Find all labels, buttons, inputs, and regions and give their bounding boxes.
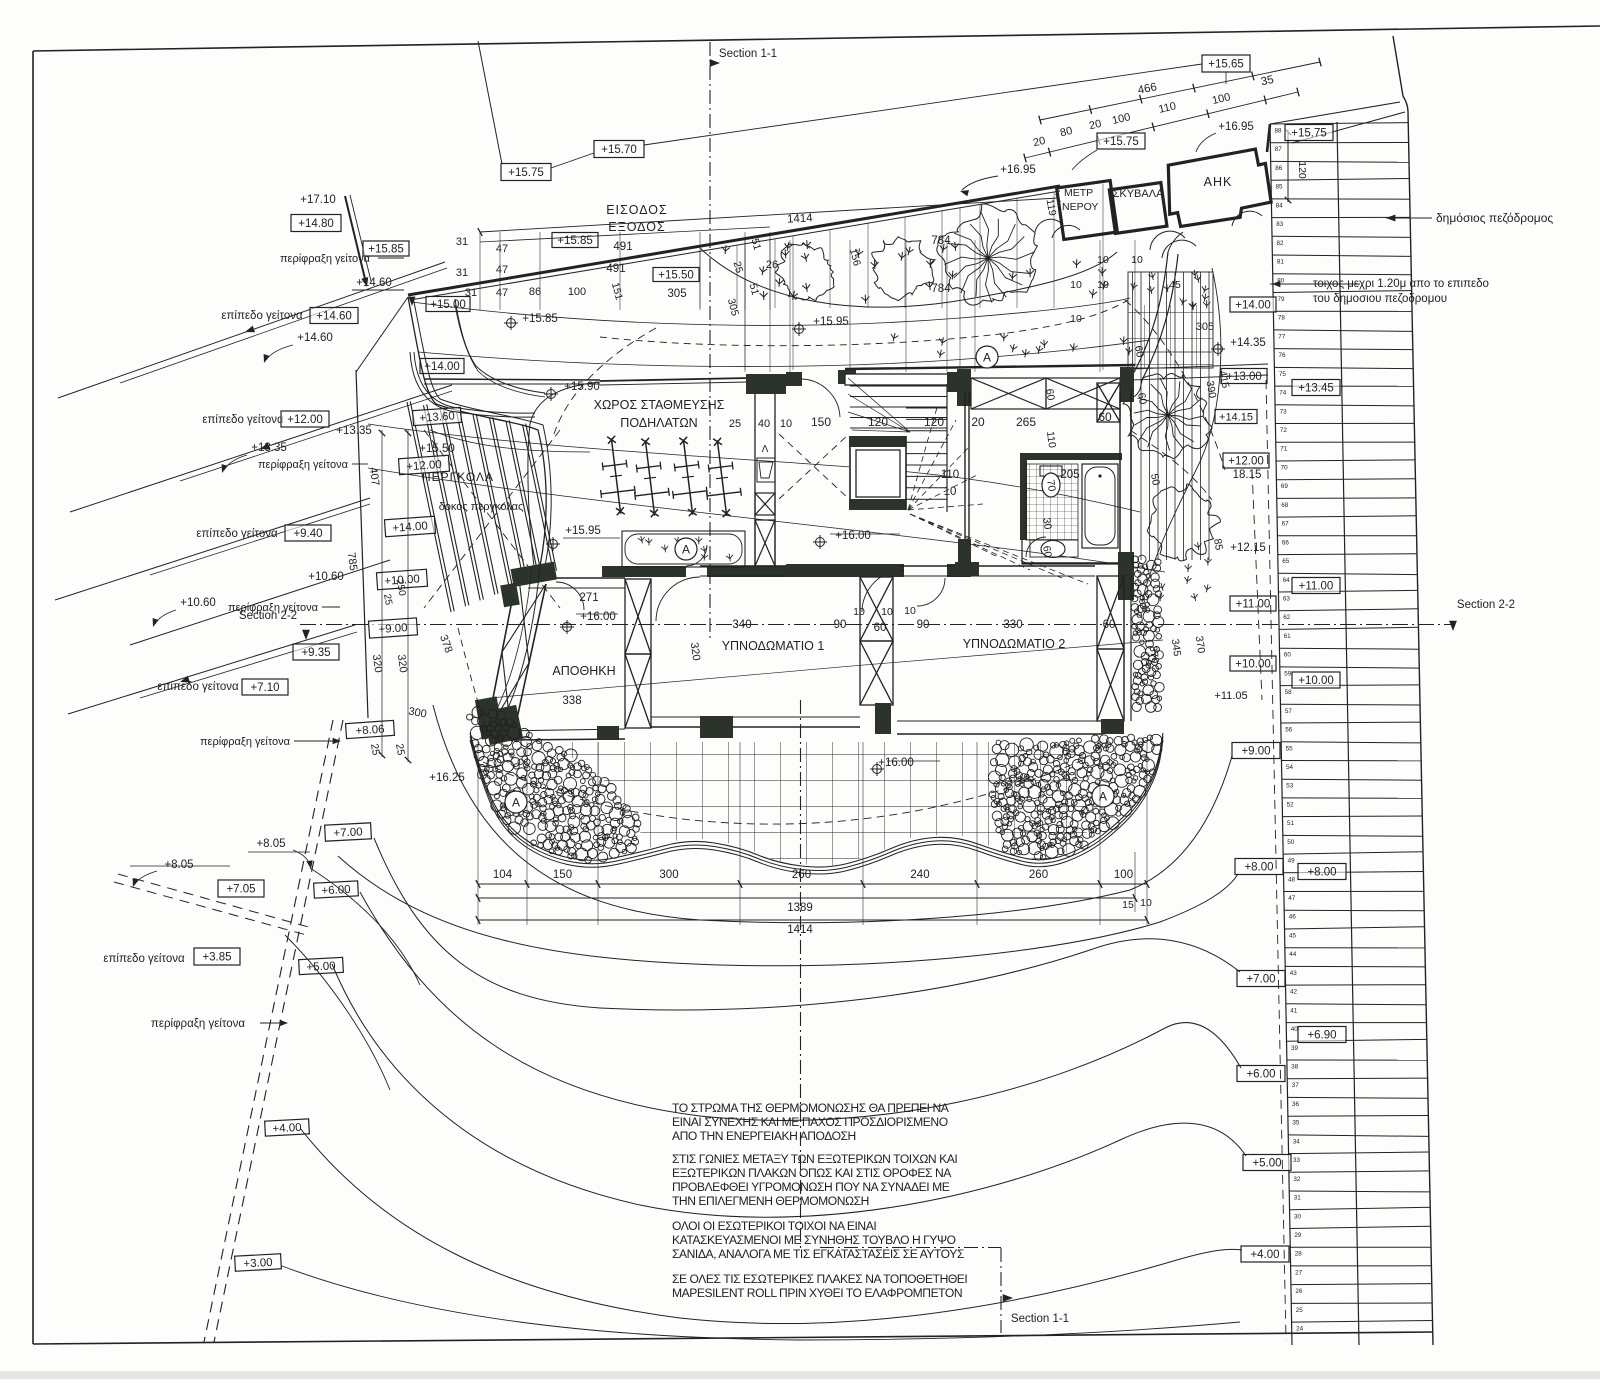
svg-text:39: 39 [1291, 1045, 1299, 1052]
svg-text:260: 260 [1029, 869, 1048, 881]
svg-text:330: 330 [1003, 619, 1022, 631]
svg-text:ΤΗΝ ΕΠΙΛΕΓΜΕΝΗ ΘΕΡΜΟΜΟΝΩΣΗ: ΤΗΝ ΕΠΙΛΕΓΜΕΝΗ ΘΕΡΜΟΜΟΝΩΣΗ [672, 1194, 869, 1208]
svg-text:ΥΠΝΟΔΩΜΑΤΙΟ 1: ΥΠΝΟΔΩΜΑΤΙΟ 1 [722, 639, 825, 653]
svg-text:60: 60 [1098, 410, 1112, 424]
svg-text:345: 345 [1169, 638, 1183, 657]
svg-text:60: 60 [1284, 652, 1292, 659]
svg-text:+11.05: +11.05 [1214, 690, 1247, 702]
svg-text:60: 60 [874, 622, 887, 634]
svg-text:70: 70 [1281, 465, 1289, 472]
svg-text:ΟΛΟΙ ΟΙ ΕΣΩΤΕΡΙΚΟΙ ΤΟΙΧΟΙ ΝΑ Ε: ΟΛΟΙ ΟΙ ΕΣΩΤΕΡΙΚΟΙ ΤΟΙΧΟΙ ΝΑ ΕΙΝΑΙ [672, 1219, 876, 1233]
svg-text:ΣΤΙΣ ΓΩΝΙΕΣ ΜΕΤΑΞΥ ΤΩΝ ΕΞΩΤΕΡΙ: ΣΤΙΣ ΓΩΝΙΕΣ ΜΕΤΑΞΥ ΤΩΝ ΕΞΩΤΕΡΙΚΩΝ ΤΟΙΧΩΝ… [672, 1152, 957, 1166]
svg-text:30: 30 [1294, 1213, 1302, 1220]
svg-text:74: 74 [1279, 390, 1287, 397]
svg-text:86: 86 [529, 286, 541, 298]
svg-text:+10.60: +10.60 [180, 597, 216, 609]
svg-text:90: 90 [917, 619, 930, 631]
svg-text:ΑΗΚ: ΑΗΚ [1204, 175, 1233, 189]
svg-text:70: 70 [1044, 479, 1058, 492]
svg-text:περίφραξη γείτονα: περίφραξη γείτονα [228, 602, 319, 614]
svg-text:10: 10 [1131, 254, 1143, 266]
svg-text:300: 300 [659, 869, 678, 881]
svg-text:120: 120 [1296, 161, 1308, 179]
svg-text:784: 784 [931, 235, 951, 247]
svg-text:+13.60: +13.60 [419, 410, 455, 424]
svg-text:ΚΑΤΑΣΚΕΥΑΣΜΕΝΟΙ ΜΕ ΣΥΝΗΘΗΣ ΤΟΥ: ΚΑΤΑΣΚΕΥΑΣΜΕΝΟΙ ΜΕ ΣΥΝΗΘΗΣ ΤΟΥΒΛΟ Η ΓΥΨΟ [672, 1233, 956, 1247]
svg-text:Section 1-1: Section 1-1 [719, 48, 777, 60]
svg-text:61: 61 [1284, 633, 1292, 640]
svg-text:επίπεδο γείτονα: επίπεδο γείτονα [221, 310, 303, 322]
svg-text:A: A [682, 543, 690, 557]
svg-text:72: 72 [1280, 427, 1288, 434]
svg-text:περίφραξη γείτονα: περίφραξη γείτονα [200, 736, 291, 748]
svg-text:77: 77 [1278, 333, 1286, 340]
svg-text:340: 340 [732, 619, 751, 631]
svg-text:65: 65 [1282, 558, 1290, 565]
svg-text:+10.00: +10.00 [1298, 675, 1334, 687]
svg-text:43: 43 [1290, 970, 1298, 977]
svg-text:ΕΞΟΔΟΣ: ΕΞΟΔΟΣ [608, 220, 665, 234]
svg-text:+11.00: +11.00 [1236, 599, 1271, 611]
svg-text:+7.00: +7.00 [1246, 974, 1275, 986]
svg-text:επίπεδο γείτονα: επίπεδο γείτονα [196, 528, 278, 540]
svg-text:150: 150 [553, 869, 572, 881]
svg-text:31: 31 [456, 267, 468, 279]
svg-text:55: 55 [1286, 745, 1294, 752]
svg-text:ΣΑΝΙΔΑ, ΑΝΑΛΟΓΑ ΜΕ ΤΙΣ ΕΓΚΑΤΑΣ: ΣΑΝΙΔΑ, ΑΝΑΛΟΓΑ ΜΕ ΤΙΣ ΕΓΚΑΤΑΣΤΑΣΕΙΣ ΣΕ … [672, 1247, 964, 1261]
svg-text:44: 44 [1289, 951, 1297, 958]
svg-text:+10.00: +10.00 [1235, 659, 1271, 671]
svg-text:60: 60 [1103, 619, 1116, 631]
svg-text:+6.00: +6.00 [1246, 1069, 1275, 1081]
svg-text:110: 110 [941, 469, 959, 481]
svg-text:25: 25 [393, 743, 407, 757]
svg-text:60: 60 [1132, 345, 1146, 359]
svg-text:82: 82 [1276, 240, 1284, 247]
svg-text:περίφραξη γείτονα: περίφραξη γείτονα [258, 459, 349, 471]
svg-text:+8.06: +8.06 [355, 724, 385, 738]
svg-text:68: 68 [1281, 502, 1289, 509]
svg-text:104: 104 [493, 869, 513, 881]
svg-text:47: 47 [496, 287, 508, 299]
svg-text:491: 491 [606, 263, 625, 275]
svg-text:+14.35: +14.35 [1230, 337, 1266, 349]
svg-text:79: 79 [1277, 296, 1285, 303]
svg-text:Section 1-1: Section 1-1 [1011, 1313, 1069, 1325]
svg-text:1389: 1389 [787, 902, 813, 914]
svg-text:+13.35: +13.35 [251, 442, 287, 454]
svg-text:85: 85 [1211, 538, 1225, 552]
svg-text:+15.75: +15.75 [1103, 136, 1139, 148]
svg-text:50: 50 [1148, 473, 1162, 487]
svg-text:10: 10 [853, 606, 865, 618]
svg-text:+15.65: +15.65 [1208, 59, 1244, 71]
svg-text:31: 31 [1294, 1195, 1302, 1202]
svg-text:ΠΟΔΗΛΑΤΩΝ: ΠΟΔΗΛΑΤΩΝ [620, 416, 697, 430]
svg-text:47: 47 [496, 243, 508, 255]
svg-text:10: 10 [944, 486, 957, 498]
svg-text:320: 320 [395, 654, 409, 674]
svg-text:26: 26 [766, 259, 778, 271]
svg-text:83: 83 [1276, 221, 1284, 228]
svg-text:100: 100 [568, 286, 586, 298]
svg-text:100: 100 [1114, 869, 1133, 881]
svg-text:+16.95: +16.95 [1218, 121, 1254, 133]
svg-text:+15.85: +15.85 [368, 244, 404, 256]
svg-text:+4.00: +4.00 [1250, 1249, 1279, 1261]
svg-text:+16.00: +16.00 [878, 757, 914, 769]
svg-text:25: 25 [729, 418, 741, 430]
svg-text:+8.00: +8.00 [1244, 862, 1273, 874]
svg-text:ΧΩΡΟΣ ΣΤΑΘΜΕΥΣΗΣ: ΧΩΡΟΣ ΣΤΑΘΜΕΥΣΗΣ [594, 398, 725, 412]
svg-text:1414: 1414 [787, 924, 813, 936]
svg-text:24: 24 [1296, 1326, 1304, 1333]
svg-text:+7.05: +7.05 [226, 884, 255, 896]
svg-text:20: 20 [971, 415, 985, 429]
svg-text:271: 271 [579, 592, 598, 604]
svg-text:δοκός περγκολας: δοκός περγκολας [439, 501, 524, 513]
svg-text:+13.45: +13.45 [1298, 383, 1334, 395]
svg-text:120: 120 [868, 415, 888, 429]
svg-text:60: 60 [1040, 545, 1054, 558]
svg-text:+7.10: +7.10 [250, 682, 279, 694]
svg-text:επίπεδο γείτονα: επίπεδο γείτονα [202, 414, 284, 426]
svg-text:31: 31 [456, 236, 468, 248]
svg-text:περίφραξη γείτονα: περίφραξη γείτονα [280, 253, 371, 265]
svg-text:+13.35: +13.35 [336, 425, 372, 437]
svg-text:+14.80: +14.80 [298, 218, 334, 230]
svg-text:+7.00: +7.00 [333, 826, 363, 840]
svg-text:ΕΙΣΟΔΟΣ: ΕΙΣΟΔΟΣ [606, 203, 668, 217]
svg-text:120: 120 [924, 415, 944, 429]
svg-text:+9.35: +9.35 [301, 647, 330, 659]
svg-text:305: 305 [1196, 321, 1214, 333]
svg-text:88: 88 [1274, 128, 1282, 135]
svg-text:+12.00: +12.00 [406, 459, 442, 473]
svg-text:28: 28 [1295, 1251, 1303, 1258]
svg-text:+14.00: +14.00 [392, 520, 428, 534]
svg-text:58: 58 [1285, 689, 1293, 696]
svg-text:49: 49 [1288, 858, 1296, 865]
svg-text:60: 60 [1135, 392, 1149, 405]
svg-text:87: 87 [1275, 146, 1283, 153]
svg-text:+9.00: +9.00 [378, 622, 408, 636]
svg-text:+3.00: +3.00 [243, 1257, 273, 1271]
svg-text:320: 320 [688, 642, 702, 662]
svg-text:ΕΞΩΤΕΡΙΚΩΝ ΠΛΑΚΩΝ ΟΠΩΣ ΚΑΙ ΣΤΙ: ΕΞΩΤΕΡΙΚΩΝ ΠΛΑΚΩΝ ΟΠΩΣ ΚΑΙ ΣΤΙΣ ΟΡΟΦΕΣ Ν… [672, 1166, 952, 1180]
svg-text:370: 370 [1193, 635, 1207, 654]
svg-text:25: 25 [1296, 1307, 1304, 1314]
svg-text:81: 81 [1277, 259, 1285, 266]
svg-text:45: 45 [1289, 933, 1297, 940]
svg-text:10: 10 [1140, 897, 1152, 909]
svg-text:10: 10 [881, 606, 893, 618]
svg-text:110: 110 [1044, 430, 1058, 448]
svg-text:85: 85 [1275, 184, 1283, 191]
svg-text:63: 63 [1283, 596, 1291, 603]
svg-text:18.15: 18.15 [1233, 469, 1262, 481]
svg-text:+11.00: +11.00 [1299, 581, 1334, 593]
svg-text:76: 76 [1278, 352, 1286, 359]
svg-text:+15.95: +15.95 [813, 316, 849, 328]
svg-text:71: 71 [1280, 446, 1288, 453]
svg-text:ΣΕ ΟΛΕΣ ΤΙΣ ΕΣΩΤΕΡΙΚΕΣ ΠΛΑΚΕΣ: ΣΕ ΟΛΕΣ ΤΙΣ ΕΣΩΤΕΡΙΚΕΣ ΠΛΑΚΕΣ ΝΑ ΤΟΠΟΘΕΤ… [672, 1272, 967, 1286]
svg-text:+15.70: +15.70 [601, 144, 637, 156]
svg-text:+14.60: +14.60 [297, 332, 333, 344]
svg-text:+16.00: +16.00 [580, 611, 616, 623]
svg-text:ΕΙΝΑΙ ΣΥΝΕΧΗΣ ΚΑΙ ΜΕ ΠΑΧΟΣ ΠΡΟ: ΕΙΝΑΙ ΣΥΝΕΧΗΣ ΚΑΙ ΜΕ ΠΑΧΟΣ ΠΡΟΣΔΙΟΡΙΣΜΕΝ… [672, 1115, 948, 1129]
svg-text:784: 784 [931, 283, 951, 295]
svg-text:785: 785 [345, 552, 359, 572]
svg-text:+15.95: +15.95 [565, 525, 601, 537]
svg-text:25: 25 [368, 743, 382, 757]
svg-text:A: A [512, 796, 520, 810]
svg-text:10: 10 [904, 605, 916, 617]
svg-text:+14.60: +14.60 [316, 311, 352, 323]
svg-text:+12.00: +12.00 [1228, 456, 1264, 468]
svg-text:του δημοσιου πεζοδρομου: του δημοσιου πεζοδρομου [1313, 293, 1447, 305]
svg-text:338: 338 [562, 695, 581, 707]
svg-text:31: 31 [465, 287, 477, 299]
svg-text:62: 62 [1283, 614, 1291, 621]
svg-text:+9.00: +9.00 [1241, 746, 1270, 758]
svg-text:περίφραξη γείτονα: περίφραξη γείτονα [151, 1018, 246, 1030]
svg-text:491: 491 [613, 241, 632, 253]
svg-text:ΑΠΟΘΗΚΗ: ΑΠΟΘΗΚΗ [552, 664, 615, 678]
svg-text:84: 84 [1276, 202, 1284, 209]
svg-text:+12.00: +12.00 [287, 414, 323, 426]
svg-text:+9.40: +9.40 [293, 528, 322, 540]
svg-text:+5.00: +5.00 [1252, 1158, 1281, 1170]
svg-text:47: 47 [496, 264, 508, 276]
svg-text:35: 35 [1292, 1120, 1300, 1127]
svg-text:15: 15 [1122, 899, 1134, 911]
svg-text:1414: 1414 [787, 212, 814, 225]
svg-text:40: 40 [758, 418, 770, 430]
svg-text:+15.50: +15.50 [419, 443, 455, 455]
svg-text:A: A [983, 351, 991, 365]
svg-text:52: 52 [1287, 801, 1295, 808]
svg-text:37: 37 [1292, 1082, 1300, 1089]
svg-text:+15.75: +15.75 [1291, 128, 1327, 140]
svg-text:205: 205 [1060, 469, 1079, 481]
svg-text:+16.00: +16.00 [835, 530, 871, 542]
svg-text:ΥΠΝΟΔΩΜΑΤΙΟ 2: ΥΠΝΟΔΩΜΑΤΙΟ 2 [963, 637, 1066, 651]
svg-text:48: 48 [1288, 876, 1296, 883]
svg-text:86: 86 [1275, 165, 1283, 172]
svg-text:57: 57 [1285, 708, 1293, 715]
svg-text:32: 32 [1293, 1176, 1301, 1183]
svg-text:30: 30 [1040, 517, 1054, 530]
svg-text:150: 150 [811, 415, 831, 429]
svg-text:10: 10 [1070, 279, 1082, 291]
svg-text:265: 265 [1016, 415, 1036, 429]
svg-text:+15.50: +15.50 [658, 270, 694, 282]
svg-text:59: 59 [1284, 670, 1292, 677]
svg-text:10: 10 [780, 418, 792, 430]
svg-text:+17.10: +17.10 [300, 194, 336, 206]
svg-text:26: 26 [1295, 1288, 1303, 1295]
svg-text:47: 47 [1288, 895, 1296, 902]
svg-text:Section 2-2: Section 2-2 [1457, 599, 1515, 611]
svg-text:επίπεδο γείτονα: επίπεδο γείτονα [103, 953, 185, 965]
svg-text:260: 260 [792, 869, 811, 881]
svg-text:MAPESILENT ROLL ΠΡΙΝ ΧΥΘΕΙ ΤΟ: MAPESILENT ROLL ΠΡΙΝ ΧΥΘΕΙ ΤΟ ΕΛΑΦΡΟΜΠΕΤ… [672, 1286, 962, 1300]
svg-text:90: 90 [834, 619, 847, 631]
svg-text:+16.95: +16.95 [1000, 164, 1036, 176]
svg-text:ΤΟ ΣΤΡΩΜΑ ΤΗΣ ΘΕΡΜΟΜΟΝΩΣΗΣ ΘΑ: ΤΟ ΣΤΡΩΜΑ ΤΗΣ ΘΕΡΜΟΜΟΝΩΣΗΣ ΘΑ ΠΡΕΠΕΙ ΝΑ [672, 1101, 950, 1115]
svg-text:66: 66 [1282, 539, 1290, 546]
svg-text:ΑΠΟ ΤΗΝ ΕΝΕΡΓΕΙΑΚΗ ΑΠΟΔΟΣΗ: ΑΠΟ ΤΗΝ ΕΝΕΡΓΕΙΑΚΗ ΑΠΟΔΟΣΗ [672, 1129, 856, 1143]
svg-text:73: 73 [1280, 408, 1288, 415]
svg-text:75: 75 [1279, 371, 1287, 378]
svg-text:+14.15: +14.15 [1219, 412, 1253, 424]
svg-text:επίπεδο γείτονα: επίπεδο γείτονα [157, 681, 239, 693]
svg-text:56: 56 [1285, 727, 1293, 734]
svg-text:240: 240 [910, 869, 929, 881]
svg-text:69: 69 [1281, 483, 1289, 490]
svg-text:+12.15: +12.15 [1230, 542, 1266, 554]
svg-text:+4.00: +4.00 [272, 1122, 302, 1136]
svg-text:305: 305 [667, 288, 686, 300]
svg-text:27: 27 [1295, 1269, 1303, 1276]
svg-text:+8.00: +8.00 [1307, 867, 1336, 879]
svg-text:+6.90: +6.90 [1307, 1030, 1336, 1042]
svg-text:δημόσιος πεζόδρομος: δημόσιος πεζόδρομος [1436, 211, 1553, 225]
svg-text:ΜΕΤΡ: ΜΕΤΡ [1064, 187, 1093, 199]
svg-text:60: 60 [1043, 388, 1057, 401]
svg-text:34: 34 [1293, 1138, 1301, 1145]
svg-text:33: 33 [1293, 1157, 1301, 1164]
svg-text:ΠΡΟΒΛΕΦΘΕΙ ΥΓΡΟΜΟΝΩΣΗ ΠΟΥ ΝΑ Σ: ΠΡΟΒΛΕΦΘΕΙ ΥΓΡΟΜΟΝΩΣΗ ΠΟΥ ΝΑ ΣΥΝΑΔΕΙ ΜΕ [672, 1180, 950, 1194]
svg-text:ΝΕΡΟΥ: ΝΕΡΟΥ [1062, 201, 1098, 213]
svg-text:46: 46 [1289, 914, 1297, 921]
svg-text:42: 42 [1290, 989, 1298, 996]
svg-text:29: 29 [1294, 1232, 1302, 1239]
svg-text:40: 40 [1291, 1026, 1299, 1033]
svg-text:51: 51 [1287, 820, 1295, 827]
svg-text:38: 38 [1291, 1064, 1299, 1071]
svg-text:41: 41 [1290, 1007, 1298, 1014]
svg-text:78: 78 [1278, 315, 1286, 322]
svg-text:+8.05: +8.05 [256, 838, 285, 850]
svg-text:36: 36 [1292, 1101, 1300, 1108]
svg-text:50: 50 [1287, 839, 1295, 846]
svg-text:+10.60: +10.60 [308, 571, 344, 583]
svg-text:67: 67 [1282, 521, 1290, 528]
svg-text:+14.00: +14.00 [1235, 300, 1271, 312]
svg-text:+13.00: +13.00 [1226, 371, 1262, 383]
svg-text:+14.00: +14.00 [424, 361, 460, 373]
svg-text:+3.85: +3.85 [202, 952, 231, 964]
svg-text:+8.05: +8.05 [164, 859, 193, 871]
svg-text:+16.25: +16.25 [429, 772, 465, 784]
svg-text:64: 64 [1283, 577, 1291, 584]
svg-text:54: 54 [1286, 764, 1294, 771]
svg-text:Λ: Λ [762, 444, 769, 455]
svg-text:320: 320 [370, 654, 384, 674]
svg-text:ΣΚΥΒΑΛΑ: ΣΚΥΒΑΛΑ [1113, 188, 1164, 200]
svg-text:+15.75: +15.75 [508, 167, 544, 179]
svg-text:53: 53 [1286, 783, 1294, 790]
